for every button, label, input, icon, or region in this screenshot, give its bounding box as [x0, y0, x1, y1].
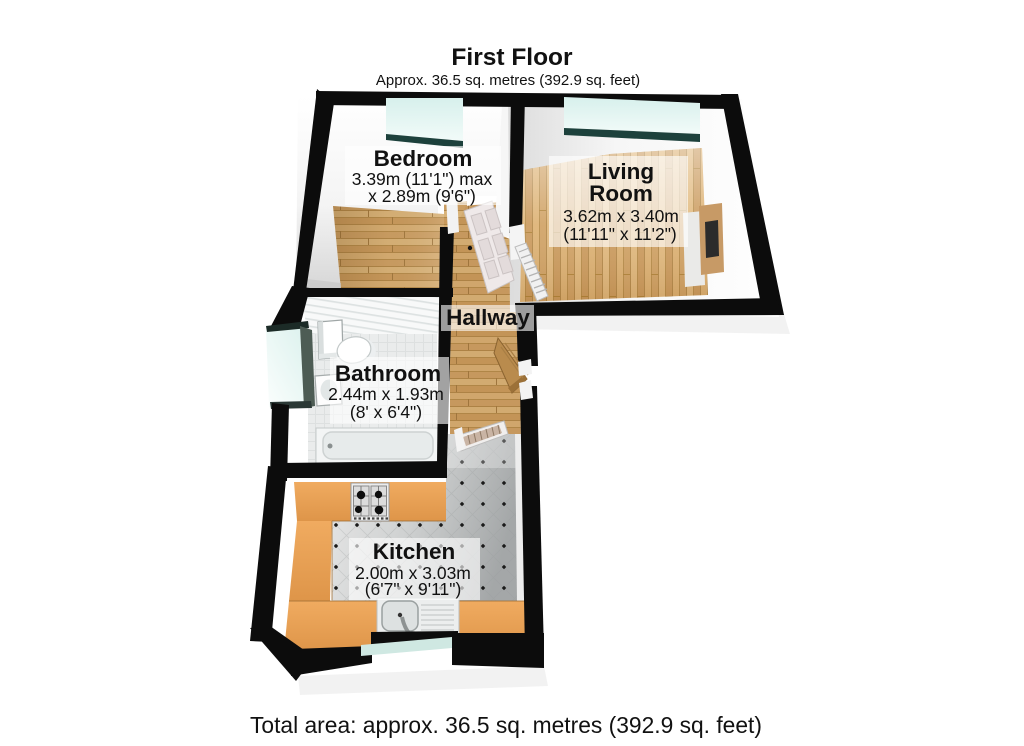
- svg-text:2.44m x 1.93m: 2.44m x 1.93m: [328, 384, 444, 404]
- svg-text:(6'7" x 9'11"): (6'7" x 9'11"): [365, 579, 462, 599]
- svg-text:Kitchen: Kitchen: [373, 539, 456, 564]
- svg-text:Bedroom: Bedroom: [374, 146, 473, 171]
- svg-text:x 2.89m (9'6"): x 2.89m (9'6"): [368, 186, 476, 206]
- svg-text:Hallway: Hallway: [446, 305, 530, 330]
- svg-text:3.62m x 3.40m: 3.62m x 3.40m: [563, 206, 679, 226]
- svg-text:(11'11" x 11'2"): (11'11" x 11'2"): [563, 224, 676, 244]
- svg-text:Room: Room: [589, 181, 653, 206]
- svg-text:First Floor: First Floor: [451, 44, 573, 71]
- svg-text:Total area: approx. 36.5 sq. m: Total area: approx. 36.5 sq. metres (392…: [250, 712, 762, 738]
- svg-text:(8' x 6'4"): (8' x 6'4"): [350, 402, 422, 422]
- svg-text:Approx. 36.5 sq. metres (392.9: Approx. 36.5 sq. metres (392.9 sq. feet): [376, 72, 640, 89]
- svg-text:Bathroom: Bathroom: [335, 361, 441, 386]
